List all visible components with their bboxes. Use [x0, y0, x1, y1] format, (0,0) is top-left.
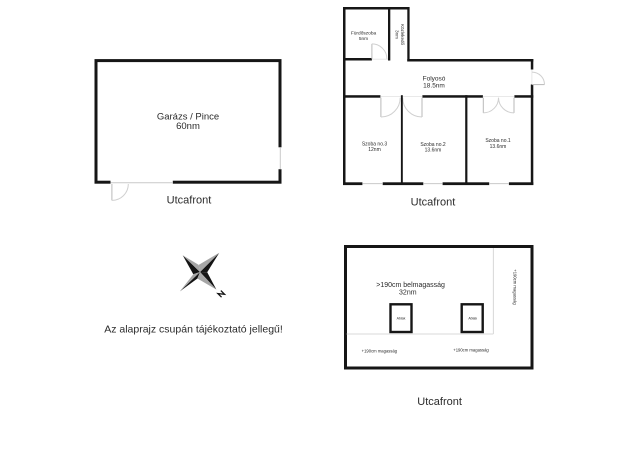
svg-text:18.5nm: 18.5nm: [423, 82, 445, 89]
svg-text:13.6nm: 13.6nm: [490, 144, 507, 150]
svg-text:Ablak: Ablak: [397, 317, 406, 321]
svg-text:60nm: 60nm: [176, 121, 200, 132]
svg-text:Fürdőszoba: Fürdőszoba: [351, 31, 377, 37]
svg-text:+190cm magasság: +190cm magasság: [512, 269, 517, 305]
svg-text:12nm: 12nm: [368, 147, 381, 153]
svg-text:3nm: 3nm: [394, 30, 399, 39]
svg-text:32nm: 32nm: [399, 290, 417, 297]
svg-text:Ablak: Ablak: [468, 317, 477, 321]
svg-text:+190cm magasság: +190cm magasság: [362, 348, 398, 353]
svg-text:13.6nm: 13.6nm: [425, 148, 442, 154]
svg-text:Közlekedő: Közlekedő: [400, 24, 405, 46]
svg-text:>190cm belmagasság: >190cm belmagasság: [376, 282, 445, 289]
svg-text:+190cm magasság: +190cm magasság: [453, 347, 489, 352]
svg-text:Az alaprajz csupán tájékoztató: Az alaprajz csupán tájékoztató jellegű!: [104, 323, 283, 335]
svg-text:Utcafront: Utcafront: [167, 195, 212, 207]
svg-text:5nm: 5nm: [359, 36, 368, 42]
svg-text:Utcafront: Utcafront: [411, 196, 456, 208]
svg-text:Utcafront: Utcafront: [417, 396, 462, 408]
